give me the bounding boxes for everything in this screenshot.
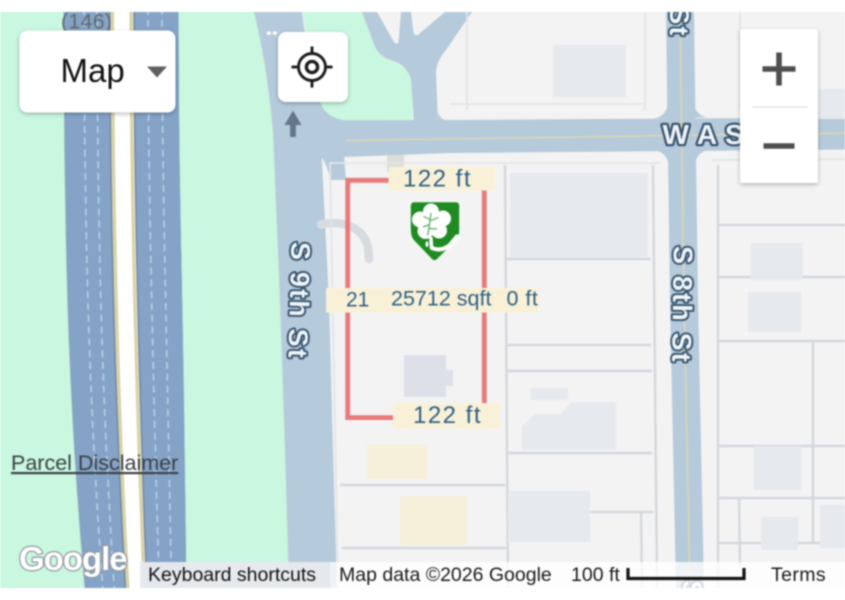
- svg-text:122 ft: 122 ft: [403, 165, 472, 192]
- svg-text:Map: Map: [61, 52, 125, 89]
- svg-text:Keyboard shortcuts: Keyboard shortcuts: [148, 564, 316, 586]
- svg-text:S 8th St: S 8th St: [666, 246, 698, 365]
- svg-text:21: 21: [346, 289, 369, 312]
- svg-text:0 ft: 0 ft: [507, 287, 539, 311]
- svg-text:25712 sqft: 25712 sqft: [391, 287, 491, 311]
- svg-text:S 9th St: S 9th St: [282, 242, 315, 361]
- svg-text:Google: Google: [19, 540, 127, 577]
- svg-text:(146): (146): [61, 11, 113, 34]
- svg-text:100 ft: 100 ft: [571, 564, 620, 586]
- svg-text:Map data ©2026 Google: Map data ©2026 Google: [339, 564, 552, 586]
- svg-text:Terms: Terms: [771, 564, 826, 586]
- svg-text:122 ft: 122 ft: [413, 402, 482, 429]
- svg-text:Parcel Disclaimer: Parcel Disclaimer: [11, 451, 178, 475]
